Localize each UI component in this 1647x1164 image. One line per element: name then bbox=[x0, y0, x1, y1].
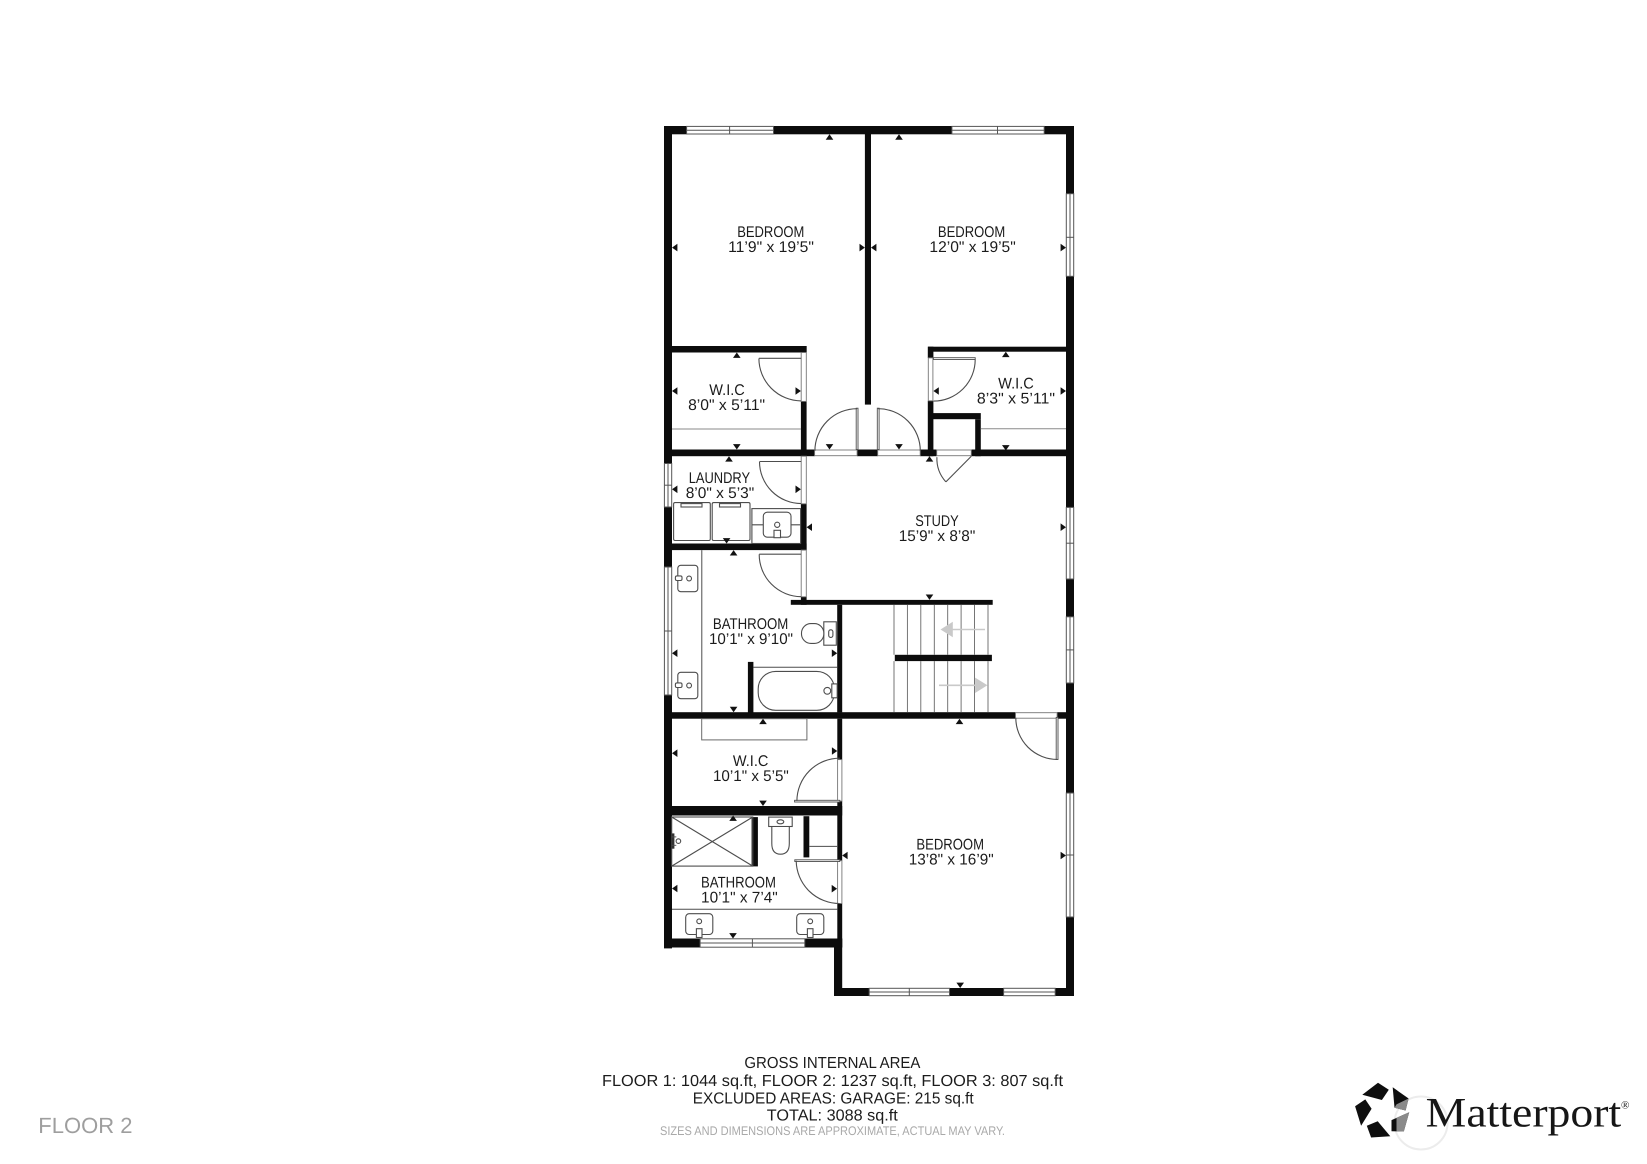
svg-text:Matterport: Matterport bbox=[1426, 1090, 1622, 1136]
svg-text:GROSS INTERNAL AREA: GROSS INTERNAL AREA bbox=[744, 1055, 920, 1072]
svg-text:8’0" x 5’11": 8’0" x 5’11" bbox=[688, 397, 765, 414]
svg-text:®: ® bbox=[1621, 1100, 1629, 1112]
svg-text:8’0" x 5’3": 8’0" x 5’3" bbox=[686, 485, 755, 502]
svg-text:10’1" x 9’10": 10’1" x 9’10" bbox=[709, 631, 793, 648]
svg-text:13’8" x 16’9": 13’8" x 16’9" bbox=[909, 851, 994, 868]
svg-text:11’9" x 19’5": 11’9" x 19’5" bbox=[728, 239, 814, 256]
svg-text:10’1" x 5’5": 10’1" x 5’5" bbox=[713, 768, 789, 785]
svg-text:10’1" x 7’4": 10’1" x 7’4" bbox=[701, 890, 778, 907]
svg-text:TOTAL: 3088 sq.ft: TOTAL: 3088 sq.ft bbox=[767, 1108, 899, 1125]
svg-text:FLOOR 1: 1044 sq.ft, FLOOR 2:: FLOOR 1: 1044 sq.ft, FLOOR 2: 1237 sq.ft… bbox=[602, 1073, 1064, 1090]
svg-text:SIZES AND DIMENSIONS ARE APPRO: SIZES AND DIMENSIONS ARE APPROXIMATE, AC… bbox=[660, 1124, 1005, 1138]
svg-text:FLOOR 2: FLOOR 2 bbox=[38, 1113, 132, 1138]
svg-text:EXCLUDED AREAS: GARAGE: 215 sq: EXCLUDED AREAS: GARAGE: 215 sq.ft bbox=[693, 1090, 975, 1107]
svg-text:15’9" x 8’8": 15’9" x 8’8" bbox=[899, 528, 976, 545]
svg-text:8’3" x 5’11": 8’3" x 5’11" bbox=[977, 390, 1055, 407]
svg-text:12’0" x 19’5": 12’0" x 19’5" bbox=[929, 239, 1015, 256]
